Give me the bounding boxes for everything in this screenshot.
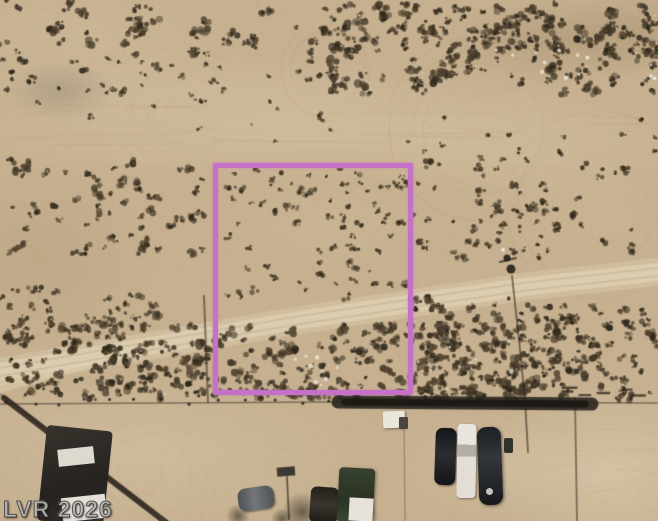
satellite-imagery: [0, 0, 658, 521]
aerial-photo: LVR 2026: [0, 0, 658, 521]
mls-watermark: LVR 2026: [3, 496, 113, 521]
